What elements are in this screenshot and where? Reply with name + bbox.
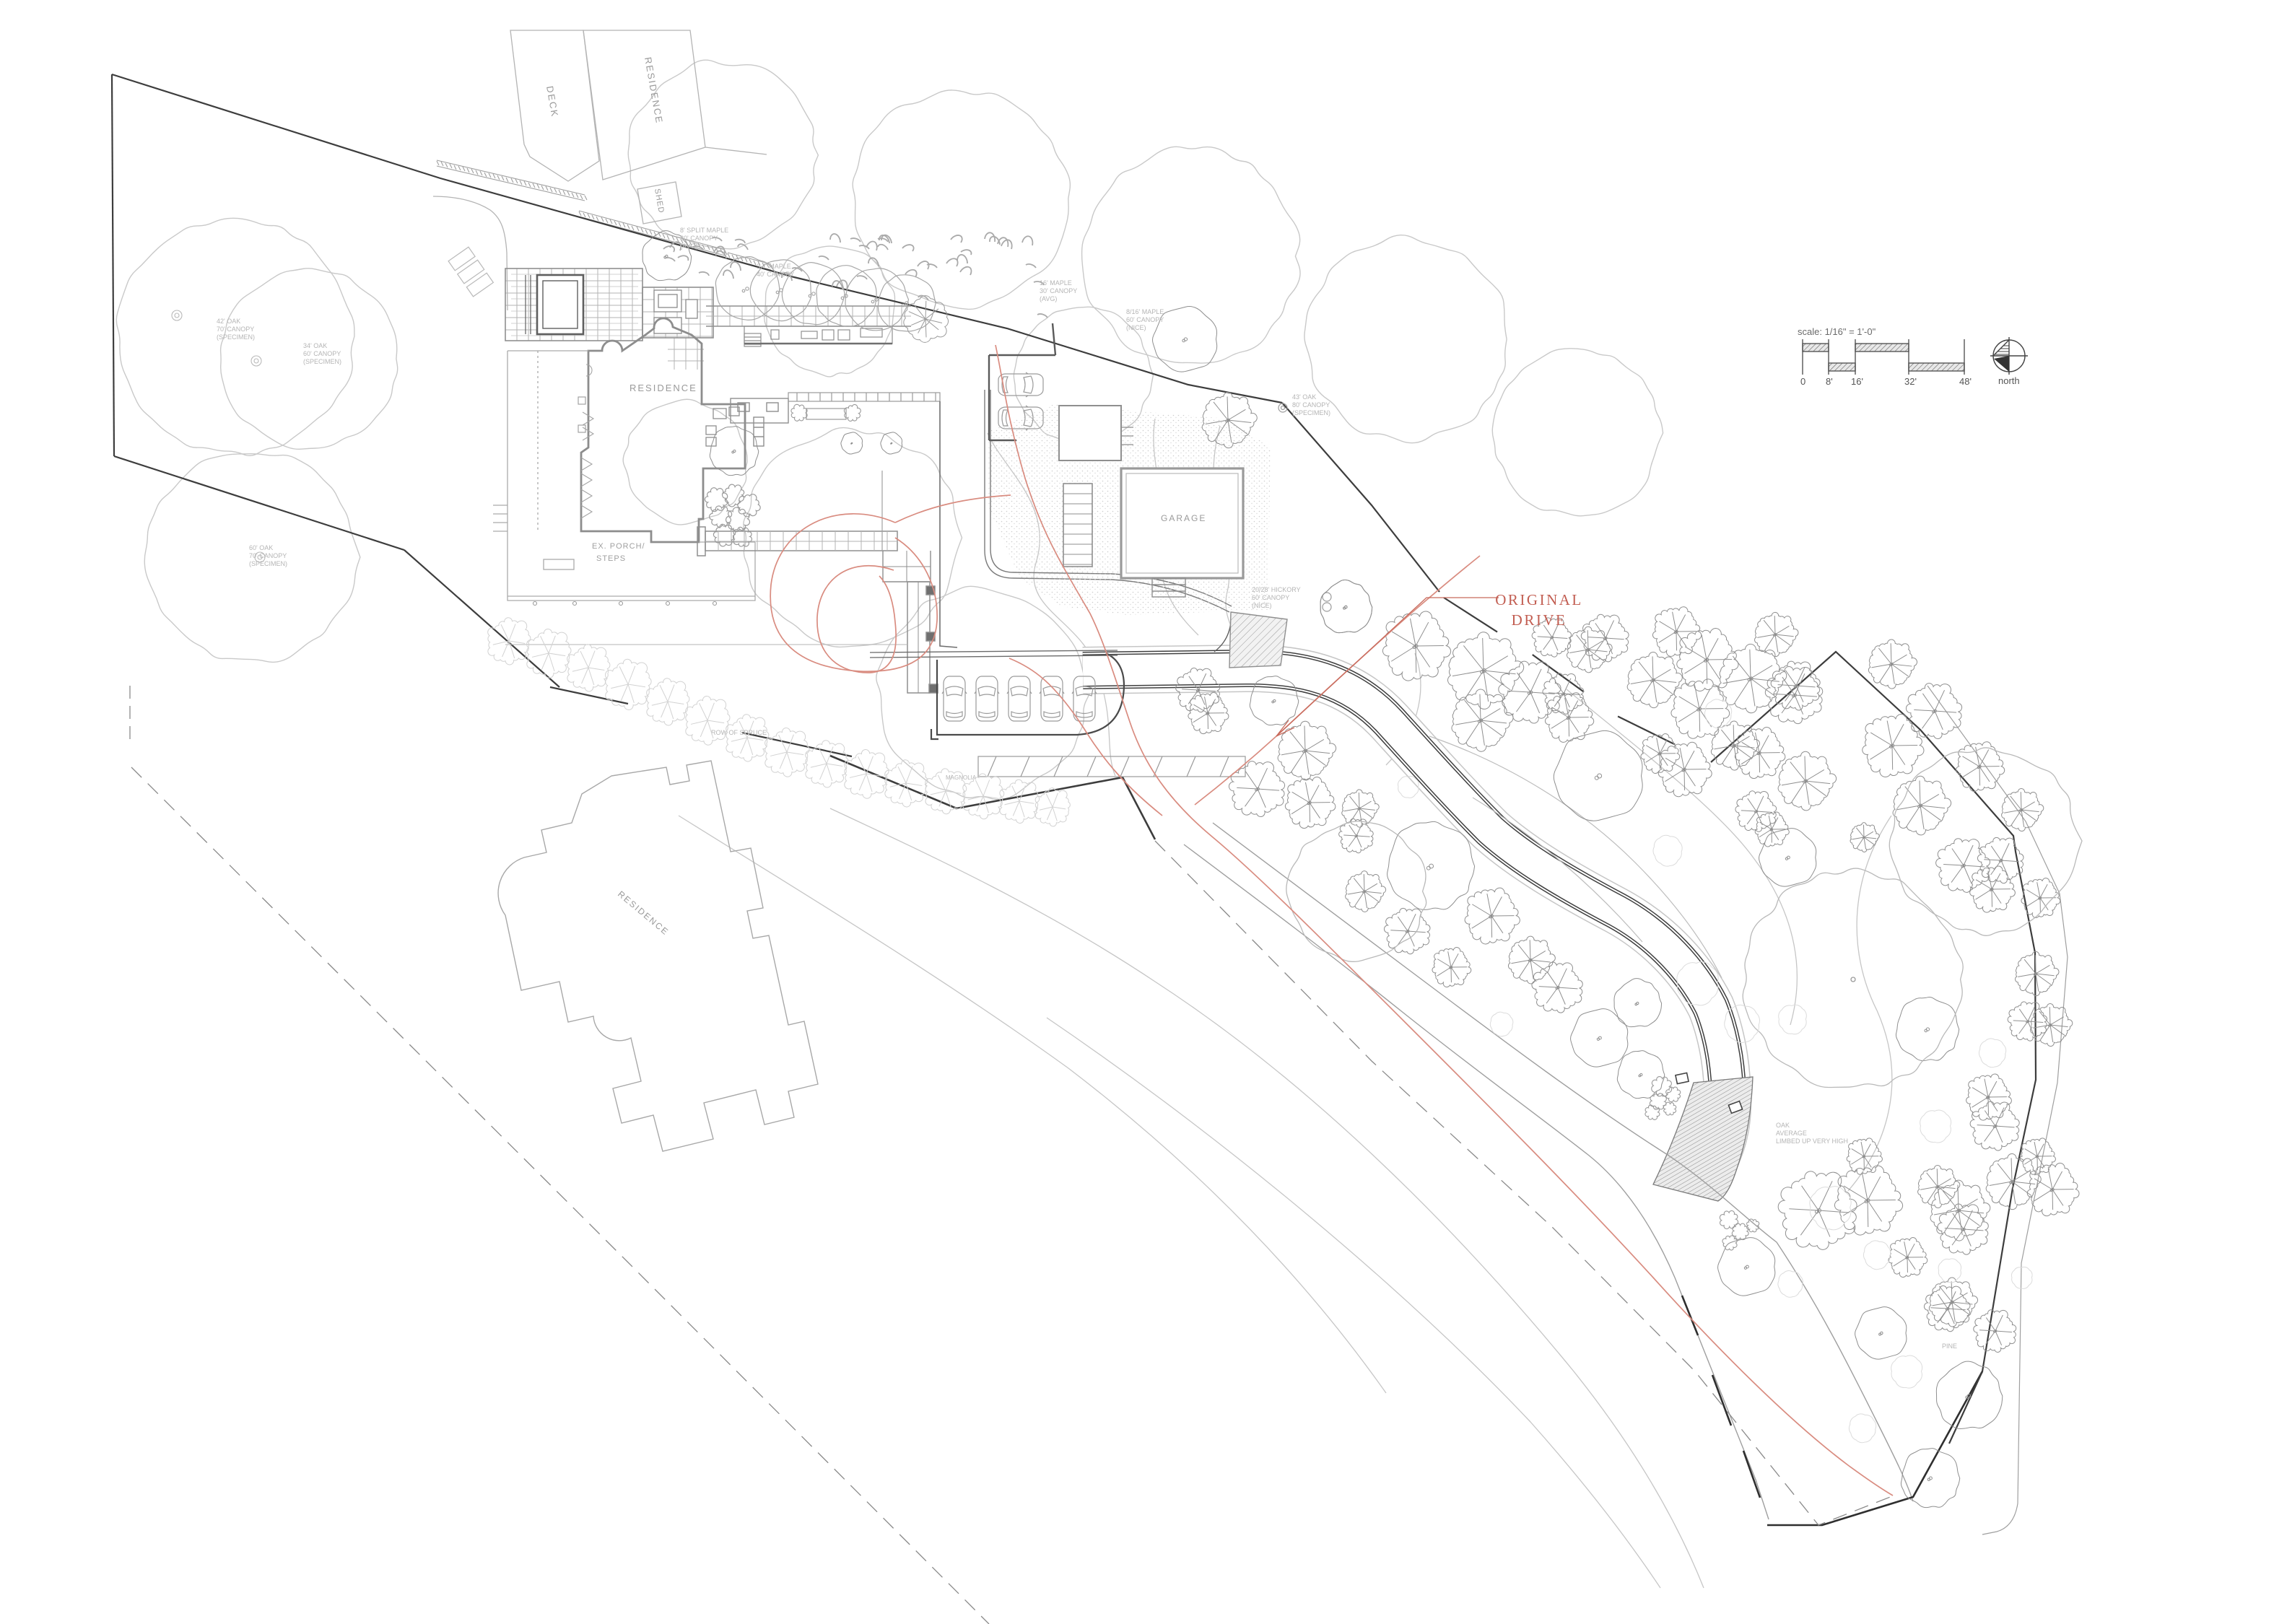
- svg-text:48': 48': [1959, 376, 1972, 387]
- svg-text:ROW OF SPRUCE: ROW OF SPRUCE: [711, 729, 767, 736]
- svg-text:LIMBED UP VERY HIGH: LIMBED UP VERY HIGH: [1776, 1138, 1848, 1145]
- svg-text:DRIVE: DRIVE: [1512, 611, 1567, 629]
- svg-text:(SPECIMEN): (SPECIMEN): [303, 358, 341, 365]
- svg-text:(AVG): (AVG): [680, 243, 697, 250]
- svg-text:60' CANOPY: 60' CANOPY: [1252, 594, 1289, 601]
- svg-text:8': 8': [1826, 376, 1833, 387]
- svg-text:(SPECIMEN): (SPECIMEN): [217, 333, 255, 341]
- svg-text:16' MAPLE: 16' MAPLE: [1040, 279, 1072, 287]
- svg-text:scale: 1/16" = 1'-0": scale: 1/16" = 1'-0": [1798, 326, 1876, 337]
- svg-text:40' CANOPY: 40' CANOPY: [757, 271, 794, 278]
- svg-text:60' CANOPY: 60' CANOPY: [1126, 316, 1164, 323]
- svg-text:60' OAK: 60' OAK: [249, 544, 273, 551]
- svg-text:(SPECIMEN): (SPECIMEN): [1292, 409, 1330, 416]
- svg-text:(AVG): (AVG): [1040, 295, 1057, 302]
- svg-text:(SPECIMEN): (SPECIMEN): [249, 560, 287, 567]
- svg-text:32': 32': [1904, 376, 1917, 387]
- svg-text:PINE: PINE: [1942, 1343, 1957, 1350]
- svg-text:3-7' MAPLE: 3-7' MAPLE: [757, 263, 791, 270]
- svg-text:70' CANOPY: 70' CANOPY: [249, 552, 287, 559]
- svg-text:north: north: [1998, 375, 2020, 386]
- svg-text:42' OAK: 42' OAK: [217, 318, 240, 325]
- svg-text:RESIDENCE: RESIDENCE: [630, 383, 697, 393]
- svg-text:ORIGINAL: ORIGINAL: [1495, 591, 1582, 608]
- svg-text:AVERAGE: AVERAGE: [1776, 1130, 1807, 1137]
- svg-text:30' CANOPY: 30' CANOPY: [680, 235, 718, 242]
- svg-text:EX. PORCH/: EX. PORCH/: [592, 542, 645, 551]
- svg-text:70' CANOPY: 70' CANOPY: [217, 326, 254, 333]
- svg-text:60' CANOPY: 60' CANOPY: [303, 350, 341, 357]
- svg-text:43' OAK: 43' OAK: [1292, 393, 1316, 401]
- svg-text:8' SPLIT MAPLE: 8' SPLIT MAPLE: [680, 227, 728, 234]
- svg-text:30' CANOPY: 30' CANOPY: [1040, 287, 1077, 294]
- svg-text:GARAGE: GARAGE: [1161, 513, 1206, 523]
- svg-text:16': 16': [1851, 376, 1863, 387]
- svg-text:0: 0: [1800, 376, 1805, 387]
- svg-text:20/28' HICKORY: 20/28' HICKORY: [1252, 586, 1301, 593]
- svg-text:8/16' MAPLE: 8/16' MAPLE: [1126, 308, 1164, 315]
- svg-text:34' OAK: 34' OAK: [303, 342, 327, 349]
- svg-text:(NICE): (NICE): [1126, 324, 1146, 331]
- svg-text:STEPS: STEPS: [596, 554, 626, 563]
- svg-text:(NICE): (NICE): [1252, 602, 1272, 609]
- svg-text:OAK: OAK: [1776, 1122, 1790, 1129]
- svg-text:80' CANOPY: 80' CANOPY: [1292, 401, 1330, 409]
